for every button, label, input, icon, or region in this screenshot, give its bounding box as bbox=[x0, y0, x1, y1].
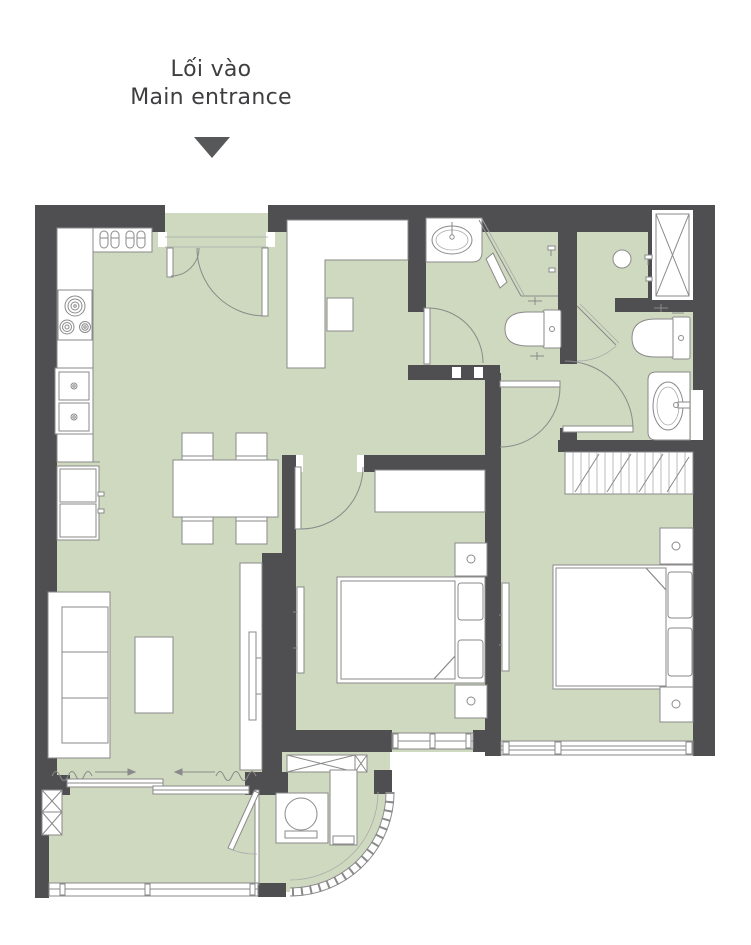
bedroom2-door-leaf bbox=[500, 381, 560, 387]
washing-machine bbox=[276, 793, 328, 843]
entrance-label-en: Main entrance bbox=[75, 84, 347, 112]
column bbox=[42, 790, 62, 835]
wall-under-shaft bbox=[615, 298, 715, 312]
wall-right bbox=[693, 205, 715, 756]
entrance-door-leaf bbox=[262, 248, 268, 316]
wall-balcony-pier bbox=[245, 772, 288, 795]
refrigerator-handle bbox=[98, 492, 104, 496]
bedroom1-bed bbox=[337, 577, 485, 683]
wall-tv-divider bbox=[262, 553, 282, 772]
refrigerator bbox=[57, 466, 99, 540]
entrance-label-vi: Lối vào bbox=[75, 56, 347, 84]
wall-bath1-left bbox=[408, 205, 426, 312]
ac-platform bbox=[287, 755, 367, 772]
bathroom2-shower-drain bbox=[613, 250, 631, 268]
balcony-shelf bbox=[330, 770, 357, 845]
bedroom2-window bbox=[501, 741, 693, 755]
wall-bed1-bottom-right bbox=[473, 730, 501, 752]
wall-bed1-bottom-left bbox=[282, 730, 392, 752]
entrance-label: Lối vào Main entrance bbox=[75, 56, 347, 112]
bedroom1-nightstand bbox=[455, 543, 487, 576]
wall-curve-pier bbox=[374, 770, 392, 794]
kitchen-sink bbox=[55, 368, 93, 434]
pillow bbox=[668, 572, 692, 618]
wall-niche bbox=[691, 390, 703, 440]
floor-plan-page: Lối vào Main entrance bbox=[0, 0, 751, 945]
stool bbox=[327, 298, 353, 331]
bedroom1-window bbox=[392, 733, 473, 749]
bedroom1-door-leaf bbox=[295, 467, 301, 529]
entrance-arrow-icon bbox=[194, 137, 230, 158]
entrance-jamb-right bbox=[266, 232, 275, 247]
entrance-jamb-left bbox=[158, 232, 167, 247]
wall-bed1-left bbox=[282, 462, 296, 752]
bedroom2-nightstand bbox=[660, 528, 693, 564]
wardrobe bbox=[565, 452, 693, 494]
sofa bbox=[48, 592, 110, 758]
bedroom2-bed bbox=[553, 565, 693, 689]
pillow bbox=[458, 640, 483, 678]
balcony-railing bbox=[49, 883, 258, 896]
pillow bbox=[668, 628, 692, 676]
coffee-table bbox=[135, 637, 173, 713]
wall-rail-block bbox=[258, 883, 286, 897]
bathroom1-sink-counter bbox=[426, 218, 482, 262]
bathroom2-toilet bbox=[632, 317, 690, 359]
bathroom1-toilet bbox=[505, 310, 561, 348]
bedroom1-desk bbox=[375, 470, 485, 512]
wall-bath2-pier-upper bbox=[560, 298, 577, 364]
bathroom2-sink bbox=[648, 372, 690, 440]
bathroom1-door-leaf bbox=[424, 308, 430, 364]
ensuite-door-leaf bbox=[563, 426, 633, 432]
wall-wardrobe-band bbox=[558, 440, 693, 452]
wall-bath-divider bbox=[558, 205, 577, 312]
refrigerator-handle bbox=[98, 509, 104, 513]
floor-plan-drawing bbox=[0, 0, 751, 945]
pillow bbox=[458, 583, 483, 620]
dining-table bbox=[173, 460, 278, 517]
entrance-door-small-leaf bbox=[167, 248, 173, 277]
bedroom1-nightstand bbox=[455, 685, 487, 718]
wall-bed1-top bbox=[363, 455, 485, 472]
bedroom2-nightstand bbox=[660, 687, 693, 722]
